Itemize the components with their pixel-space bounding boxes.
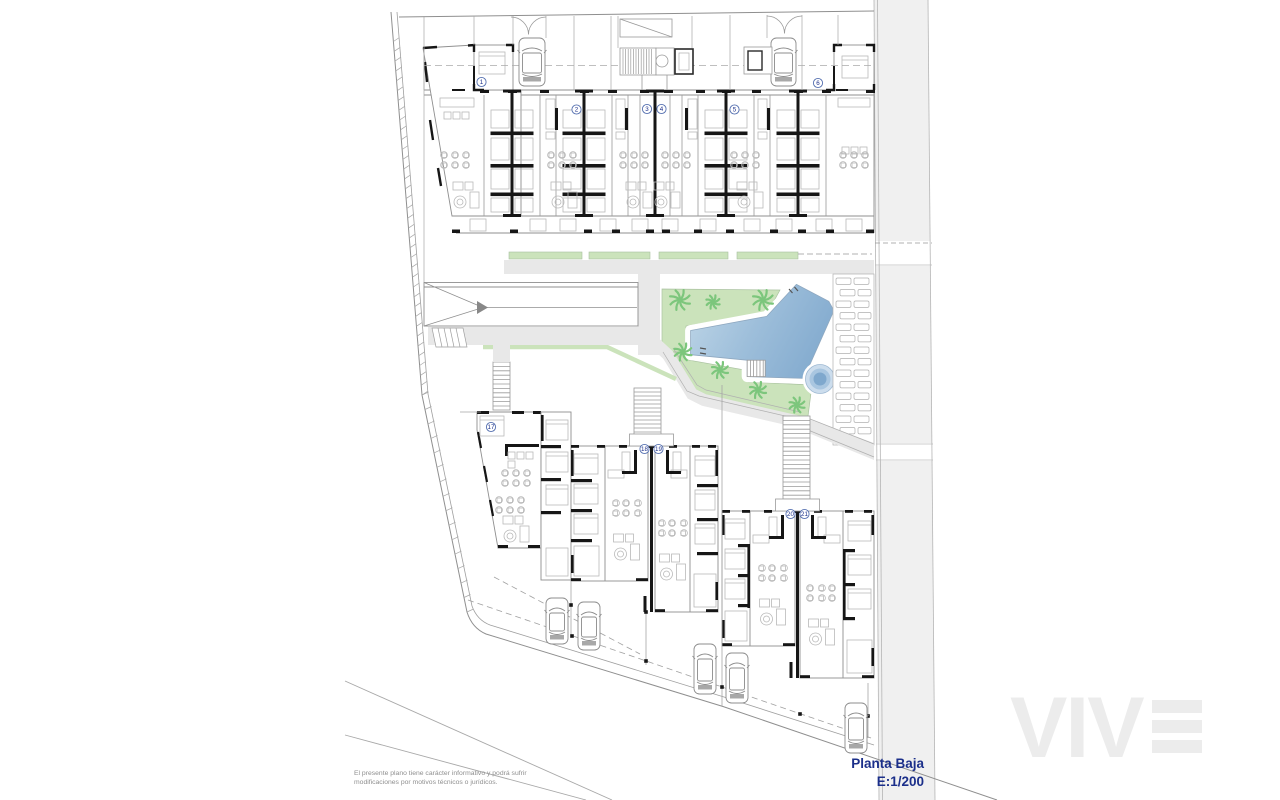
svg-text:3: 3 bbox=[645, 106, 649, 113]
svg-text:17: 17 bbox=[488, 424, 495, 431]
svg-text:6: 6 bbox=[816, 80, 820, 87]
svg-text:4: 4 bbox=[660, 106, 664, 113]
svg-text:2: 2 bbox=[575, 107, 579, 114]
svg-text:21: 21 bbox=[801, 511, 808, 518]
svg-text:19: 19 bbox=[655, 446, 662, 453]
svg-text:El presente plano tiene ca: El presente plano tiene carácter informa… bbox=[354, 770, 527, 777]
svg-text:18: 18 bbox=[641, 446, 648, 453]
svg-text:1: 1 bbox=[480, 79, 484, 86]
svg-text:modificaciones por motivos téc: modificaciones por motivos técnicos o ju… bbox=[354, 779, 498, 786]
svg-text:5: 5 bbox=[733, 107, 737, 114]
svg-text:E:1/200: E:1/200 bbox=[877, 774, 924, 789]
svg-text:VIV: VIV bbox=[1010, 680, 1144, 776]
svg-text:20: 20 bbox=[787, 511, 794, 518]
svg-text:Planta Baja: Planta Baja bbox=[851, 756, 924, 771]
